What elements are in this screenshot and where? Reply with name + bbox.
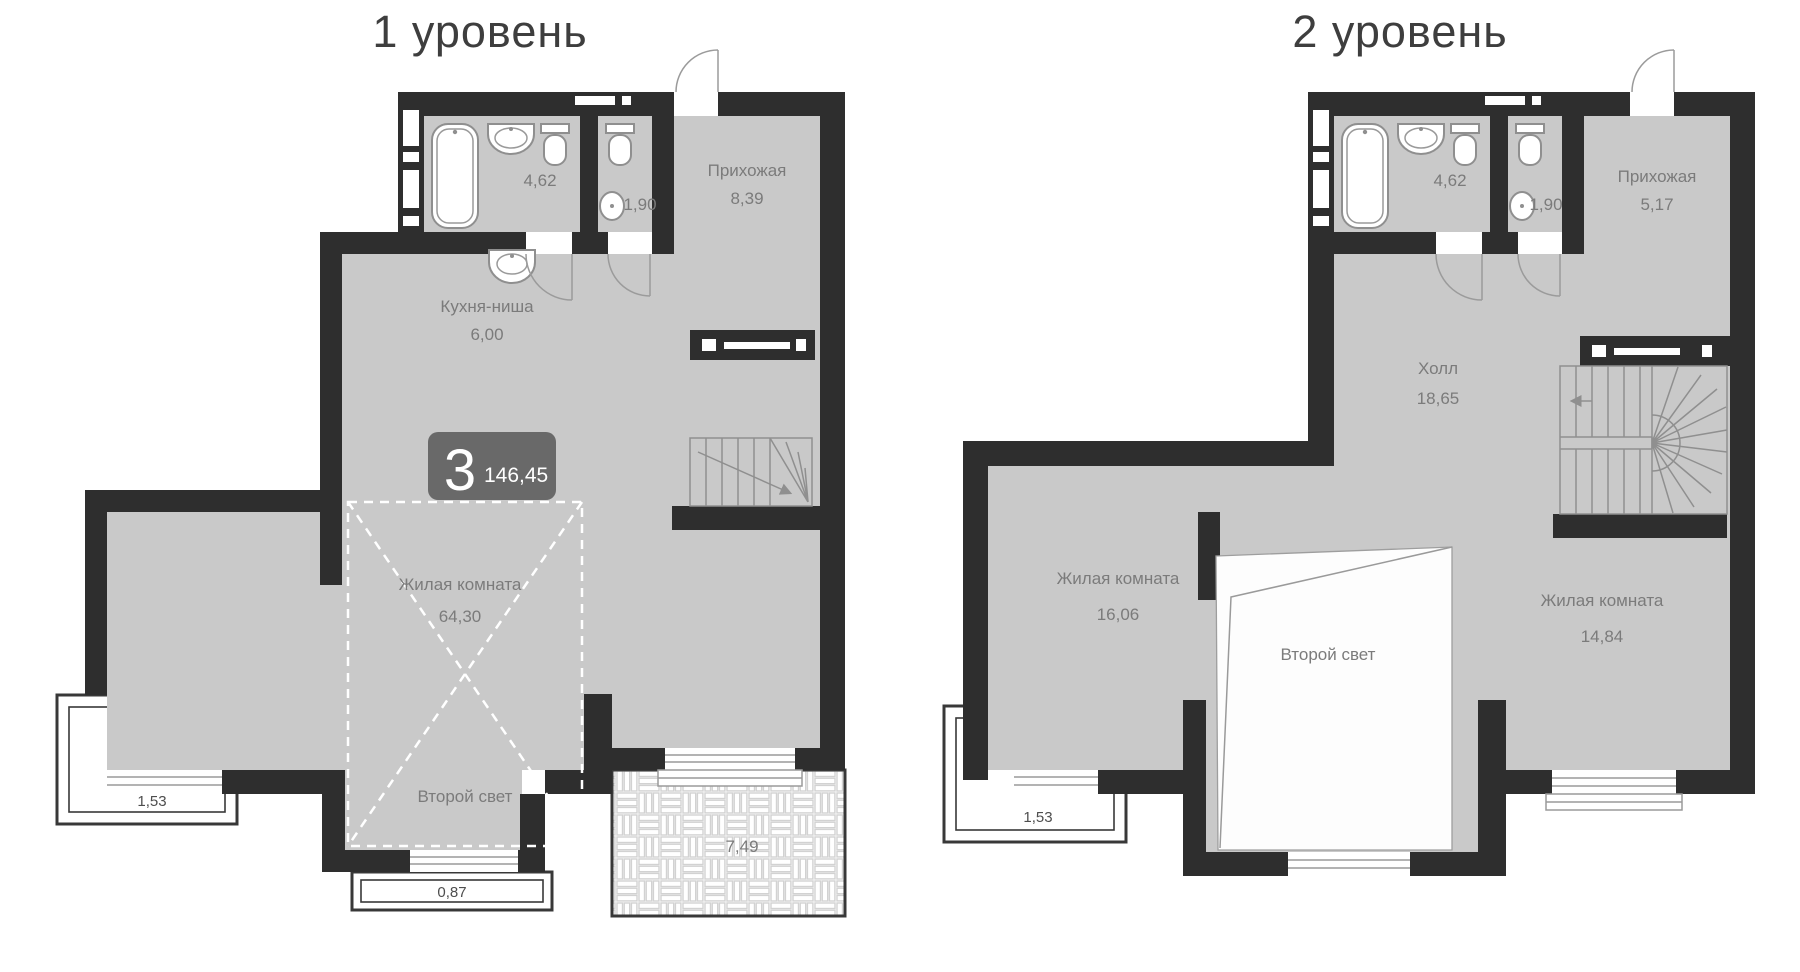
dim-label-balcony2: 0,87 [437, 884, 466, 901]
toilet-icon [1516, 124, 1544, 165]
room-label-hall: Холл [1418, 359, 1458, 378]
apartment-badge: 3 146,45 [428, 432, 556, 503]
room-label-terrace-area: 7,49 [725, 837, 758, 856]
entrance-door-arc [676, 50, 718, 92]
badge-rooms: 3 [444, 438, 476, 503]
room-label-living1-area: 16,06 [1097, 605, 1140, 624]
room-label-void: Второй свет [418, 787, 513, 806]
room-label-hallway: Прихожая [1618, 167, 1697, 186]
dim-label-balcony: 1,53 [137, 793, 166, 810]
toilet-icon [606, 124, 634, 165]
bathtub-icon [432, 124, 478, 228]
room-label-hallway-area: 8,39 [730, 189, 763, 208]
badge-total-area: 146,45 [484, 464, 548, 487]
room-label-living2-area: 14,84 [1581, 627, 1624, 646]
void-opening [1216, 547, 1452, 850]
room-label-living1: Жилая комната [1057, 569, 1180, 588]
room-label-void: Второй свет [1281, 645, 1376, 664]
room-label-living: Жилая комната [399, 575, 522, 594]
room-label-hallway-area: 5,17 [1640, 195, 1673, 214]
toilet-icon [541, 124, 569, 165]
room-label-kitchen: Кухня-ниша [440, 297, 534, 316]
room-label-kitchen-area: 6,00 [470, 325, 503, 344]
bathtub-icon [1342, 124, 1388, 228]
sink-icon [488, 124, 534, 154]
dim-label-balcony: 1,53 [1023, 809, 1052, 826]
room-label-wc-area: 1,90 [1529, 195, 1562, 214]
floor-plan-level-1: 3 146,45 4,62 1,90 Прихожая 8,39 Кухня-н… [20, 40, 900, 930]
room-label-wc-area: 1,90 [623, 195, 656, 214]
room-label-living2: Жилая комната [1541, 591, 1664, 610]
sink-icon [1398, 124, 1444, 154]
floor-plan-level-2: 4,62 1,90 Прихожая 5,17 Холл 18,65 Жилая… [930, 40, 1800, 930]
small-sink-icon [600, 192, 624, 220]
entrance-door-arc [1632, 50, 1674, 92]
room-label-hallway: Прихожая [708, 161, 787, 180]
room-label-hall-area: 18,65 [1417, 389, 1460, 408]
room-label-living-area: 64,30 [439, 607, 482, 626]
room-label-bath-area: 4,62 [1433, 171, 1466, 190]
toilet-icon [1451, 124, 1479, 165]
room-label-bath-area: 4,62 [523, 171, 556, 190]
